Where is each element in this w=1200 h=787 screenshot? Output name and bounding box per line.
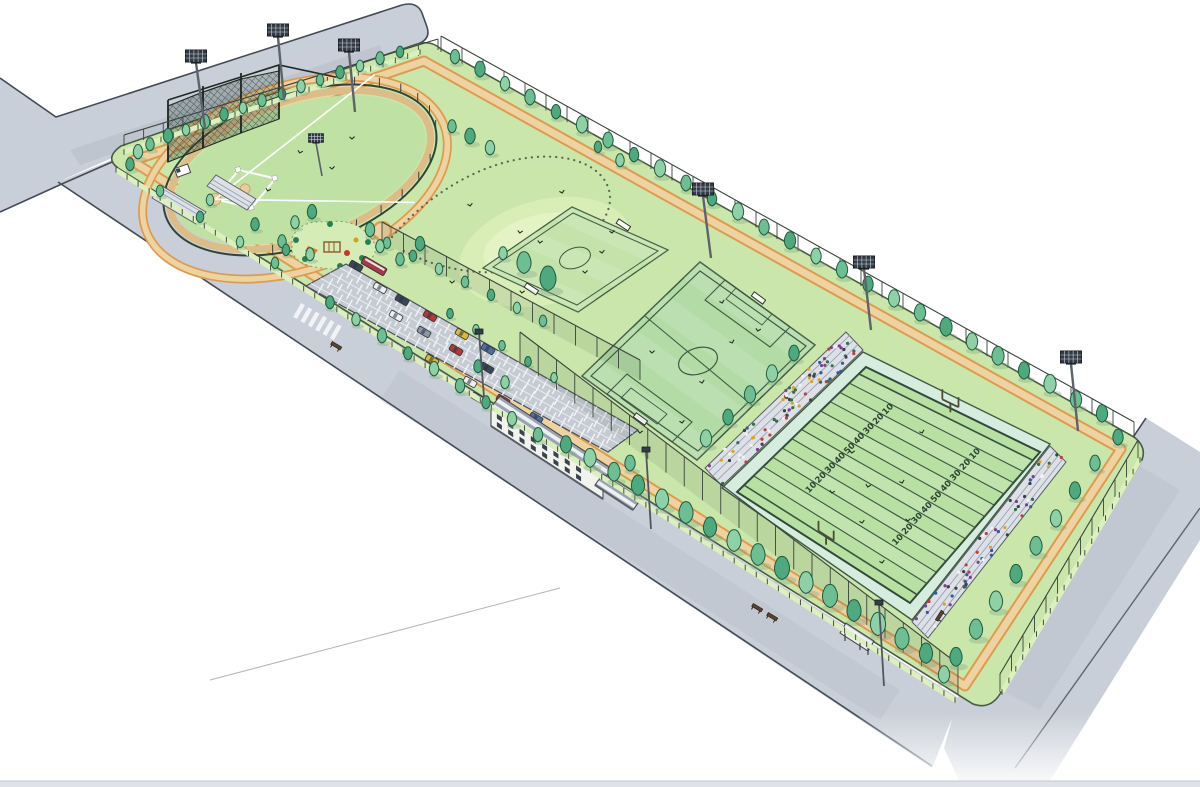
spectator — [743, 429, 746, 432]
tower-light-head — [339, 39, 360, 51]
spectator — [746, 426, 749, 429]
tree-canopy — [133, 144, 142, 159]
tree-canopy — [992, 346, 1004, 365]
tree-canopy — [584, 448, 596, 467]
tree-canopy — [1010, 564, 1022, 583]
spectator — [791, 402, 794, 405]
spectator — [750, 444, 753, 447]
tree — [759, 219, 774, 238]
spectator — [976, 561, 979, 564]
spectator — [990, 527, 993, 530]
site-plan-illustration: 102030405040302010102030405040302010 — [0, 0, 1200, 787]
spectator — [807, 367, 810, 370]
road-west-fork — [0, 78, 64, 212]
spectator — [823, 364, 826, 367]
tree-canopy — [938, 666, 949, 683]
tree — [992, 346, 1010, 369]
spectator — [1047, 465, 1050, 468]
tree-canopy — [766, 365, 777, 382]
spectator — [949, 603, 952, 606]
tree — [603, 132, 618, 151]
tree-canopy — [513, 302, 521, 314]
spectator — [1048, 462, 1051, 465]
spectator — [976, 551, 979, 554]
spectator — [736, 441, 739, 444]
spectator — [1017, 505, 1020, 508]
tree-canopy — [450, 49, 459, 64]
tree-canopy — [799, 572, 813, 594]
tree-canopy — [966, 333, 977, 350]
spectator — [964, 580, 967, 583]
spectator — [842, 348, 845, 351]
tree-canopy — [1050, 510, 1061, 527]
tree-canopy — [539, 315, 547, 327]
tree-canopy — [700, 430, 711, 447]
spectator — [965, 563, 968, 566]
spectator — [782, 417, 785, 420]
spectator — [819, 371, 822, 374]
tree-canopy — [500, 76, 509, 91]
spectator — [820, 364, 823, 367]
spectator — [924, 604, 927, 607]
tree-canopy — [784, 232, 795, 249]
tree-canopy — [679, 502, 693, 524]
tree-canopy — [475, 61, 485, 77]
spectator — [742, 455, 745, 458]
spectator — [809, 398, 812, 401]
tree-canopy — [654, 160, 665, 177]
spectator — [756, 448, 759, 451]
spectator — [989, 546, 992, 549]
tower-light-head — [854, 256, 875, 268]
spectator — [969, 576, 972, 579]
spectator — [738, 453, 741, 456]
spectator — [744, 460, 747, 463]
tree-canopy — [727, 530, 741, 552]
tree-canopy — [352, 313, 360, 326]
spectator — [792, 386, 795, 389]
spectator — [818, 361, 821, 364]
tree-canopy — [681, 175, 691, 191]
spectator — [978, 537, 981, 540]
spectator — [783, 409, 786, 412]
tree-canopy — [196, 211, 204, 223]
tree-canopy — [1069, 482, 1080, 499]
lamp-head — [642, 447, 650, 452]
spectator — [831, 364, 834, 367]
tree-canopy — [126, 158, 134, 171]
tree-canopy — [307, 204, 316, 219]
tree-canopy — [551, 104, 560, 119]
spectator — [943, 603, 946, 606]
tree-canopy — [306, 248, 314, 261]
tree-canopy — [811, 248, 821, 264]
tree-canopy — [163, 128, 172, 143]
spectator — [1028, 482, 1031, 485]
tree-canopy — [461, 276, 469, 288]
bottom-edge-strip — [0, 781, 1200, 787]
spectator — [812, 375, 815, 378]
spectator — [1029, 478, 1032, 481]
tree-canopy — [703, 517, 716, 537]
tower-light-head — [268, 24, 289, 36]
lamp-head — [475, 329, 483, 334]
spectator — [957, 571, 960, 574]
tree-canopy — [631, 475, 644, 495]
spectator — [990, 549, 993, 552]
tree-canopy — [291, 216, 299, 229]
spectator — [967, 571, 970, 574]
spectator — [785, 414, 788, 417]
tree-canopy — [376, 52, 384, 65]
spectator — [994, 528, 997, 531]
spectator — [1037, 463, 1040, 466]
tree-canopy — [744, 386, 755, 403]
tower-light-head — [186, 50, 207, 62]
tree-canopy — [551, 373, 558, 383]
tree-canopy — [969, 619, 982, 639]
spectator — [965, 583, 968, 586]
spectator — [962, 570, 965, 573]
tree — [1096, 405, 1113, 426]
tree-canopy — [533, 427, 542, 442]
spectator — [1015, 500, 1018, 503]
tree-canopy — [487, 289, 495, 301]
spectator — [981, 558, 984, 561]
tree-canopy — [1096, 405, 1107, 422]
tree-canopy — [336, 66, 344, 79]
tree-canopy — [146, 138, 154, 151]
spectator — [728, 459, 731, 462]
spectator — [933, 625, 936, 628]
spectator — [1009, 499, 1012, 502]
tree-canopy — [525, 357, 532, 367]
spectator — [732, 450, 735, 453]
tree — [475, 61, 490, 80]
tree-canopy — [326, 296, 334, 309]
tree-canopy — [1030, 536, 1042, 555]
tree — [940, 317, 958, 340]
spectator — [852, 352, 855, 355]
spectator — [1055, 453, 1058, 456]
tree-canopy — [435, 263, 443, 275]
tree-canopy — [950, 647, 962, 666]
spectator — [834, 345, 837, 348]
tree-canopy — [774, 556, 789, 579]
spectator — [752, 423, 755, 426]
tree-canopy — [655, 489, 668, 509]
spectator — [934, 592, 937, 595]
spectator — [801, 375, 804, 378]
spectator — [810, 380, 813, 383]
tree-canopy — [525, 89, 535, 105]
spectator — [985, 532, 988, 535]
spectator — [1023, 495, 1026, 498]
spectator — [808, 374, 811, 377]
spectator — [839, 370, 842, 373]
tree-canopy — [616, 154, 624, 167]
spectator — [990, 554, 993, 557]
tree-canopy — [376, 240, 384, 253]
tower-light-head — [693, 183, 714, 195]
tree-canopy — [239, 102, 247, 114]
tree-canopy — [485, 140, 494, 155]
tree-canopy — [236, 236, 244, 248]
tree-canopy — [940, 317, 952, 336]
spectator — [981, 534, 984, 537]
tree-canopy — [836, 261, 847, 278]
spectator — [728, 452, 731, 455]
spectator — [915, 617, 918, 620]
tree — [551, 104, 565, 122]
tree-canopy — [501, 376, 509, 389]
tree-canopy — [723, 409, 733, 425]
spectator — [926, 611, 929, 614]
tree-canopy — [751, 544, 765, 566]
spectator — [1006, 533, 1009, 536]
spectator — [752, 436, 755, 439]
tree-canopy — [156, 185, 164, 197]
spectator — [965, 573, 968, 576]
tree-canopy — [258, 94, 266, 107]
tree-canopy — [629, 147, 638, 162]
spectator — [1020, 514, 1023, 517]
tree-canopy — [517, 252, 531, 274]
tree-canopy — [870, 612, 885, 635]
tower-light-head — [1061, 351, 1082, 363]
spectator — [785, 394, 788, 397]
tree-canopy — [356, 60, 364, 72]
tree-canopy — [316, 74, 324, 86]
tree — [629, 147, 643, 165]
tree-canopy — [297, 80, 305, 93]
spectator — [947, 585, 950, 588]
tree-canopy — [251, 218, 259, 231]
spectator — [795, 403, 798, 406]
spectator — [775, 420, 778, 423]
spectator — [788, 408, 791, 411]
spectator — [1041, 474, 1044, 477]
tree-canopy — [377, 328, 386, 343]
spectator — [1060, 456, 1063, 459]
tree-canopy — [507, 411, 516, 426]
tree-canopy — [895, 628, 909, 650]
tree-canopy — [271, 257, 279, 269]
tree-canopy — [465, 128, 475, 144]
spectator — [785, 416, 788, 419]
tree-canopy — [594, 141, 602, 153]
tree-canopy — [455, 378, 464, 393]
tree-canopy — [1018, 362, 1029, 379]
spectator — [826, 360, 829, 363]
tree-canopy — [1090, 455, 1100, 471]
spectator — [846, 342, 849, 345]
spectator — [825, 380, 828, 383]
tree-canopy — [447, 309, 454, 319]
tree-canopy — [220, 108, 228, 121]
tree-canopy — [789, 345, 799, 361]
tree-canopy — [182, 124, 190, 136]
play-equipment-red — [344, 250, 350, 256]
spectator — [839, 346, 842, 349]
spectator — [768, 433, 771, 436]
tree-canopy — [1044, 374, 1056, 393]
spectator — [997, 530, 1000, 533]
tree-canopy — [482, 396, 490, 409]
road-centerline — [210, 588, 560, 680]
spectator — [745, 432, 748, 435]
spectator — [798, 384, 801, 387]
spectator — [954, 587, 957, 590]
tree-canopy — [429, 361, 438, 376]
spectator — [798, 404, 801, 407]
tower-light-head — [309, 134, 324, 142]
tree-canopy — [540, 266, 556, 291]
spectator — [1014, 508, 1017, 511]
tree-canopy — [499, 341, 506, 351]
spectator — [951, 594, 954, 597]
tree-canopy — [576, 116, 587, 133]
tree-canopy — [415, 236, 424, 251]
spectator — [760, 438, 763, 441]
tree-canopy — [603, 132, 613, 148]
tree — [1044, 374, 1062, 397]
tree-canopy — [282, 244, 290, 256]
tree-canopy — [206, 194, 214, 206]
spectator — [784, 389, 787, 392]
spectator — [723, 448, 726, 451]
spectator — [767, 429, 770, 432]
spectator — [943, 584, 946, 587]
spectator — [963, 586, 966, 589]
spectator — [841, 362, 844, 365]
tree-canopy — [914, 304, 925, 321]
spectator — [817, 378, 820, 381]
tree-canopy — [1113, 429, 1123, 445]
tree-canopy — [759, 219, 769, 235]
spectator — [737, 458, 740, 461]
spectator — [836, 371, 839, 374]
tree — [500, 76, 514, 94]
tree-canopy — [409, 250, 417, 262]
spectator — [827, 348, 830, 351]
play-equipment-yellow — [354, 238, 359, 243]
tree-canopy — [365, 222, 374, 237]
tree-canopy — [404, 347, 412, 360]
tree-canopy — [499, 247, 507, 260]
tree-canopy — [396, 46, 404, 58]
spectator — [1027, 499, 1030, 502]
spectator — [764, 428, 767, 431]
spectator — [761, 443, 764, 446]
tree-canopy — [608, 462, 620, 481]
spectator — [804, 392, 807, 395]
spectator — [829, 377, 832, 380]
tree-canopy — [989, 591, 1002, 611]
spectator — [1003, 526, 1006, 529]
spectator — [708, 464, 711, 467]
spectator — [720, 459, 723, 462]
tree-canopy — [888, 290, 899, 307]
tree-canopy — [448, 120, 456, 133]
spectator — [788, 386, 791, 389]
tree-canopy — [732, 203, 743, 220]
tree-canopy — [847, 600, 861, 622]
spectator — [1031, 498, 1034, 501]
tree-canopy — [560, 436, 571, 453]
spectator — [927, 600, 930, 603]
spectator — [791, 406, 794, 409]
tree — [811, 248, 826, 267]
tree-canopy — [625, 455, 635, 471]
sports-park-aerial-drawing: 102030405040302010102030405040302010 — [0, 0, 1200, 787]
spectator — [1032, 475, 1035, 478]
spectator — [844, 356, 847, 359]
spectator — [1025, 503, 1028, 506]
spectator — [823, 357, 826, 360]
spectator — [1029, 505, 1032, 508]
spectator — [790, 398, 793, 401]
tree-canopy — [396, 253, 404, 266]
spectator — [782, 398, 785, 401]
tree — [525, 89, 540, 108]
tree-canopy — [822, 584, 837, 607]
lamp-head — [875, 600, 883, 605]
tree-canopy — [919, 643, 932, 663]
